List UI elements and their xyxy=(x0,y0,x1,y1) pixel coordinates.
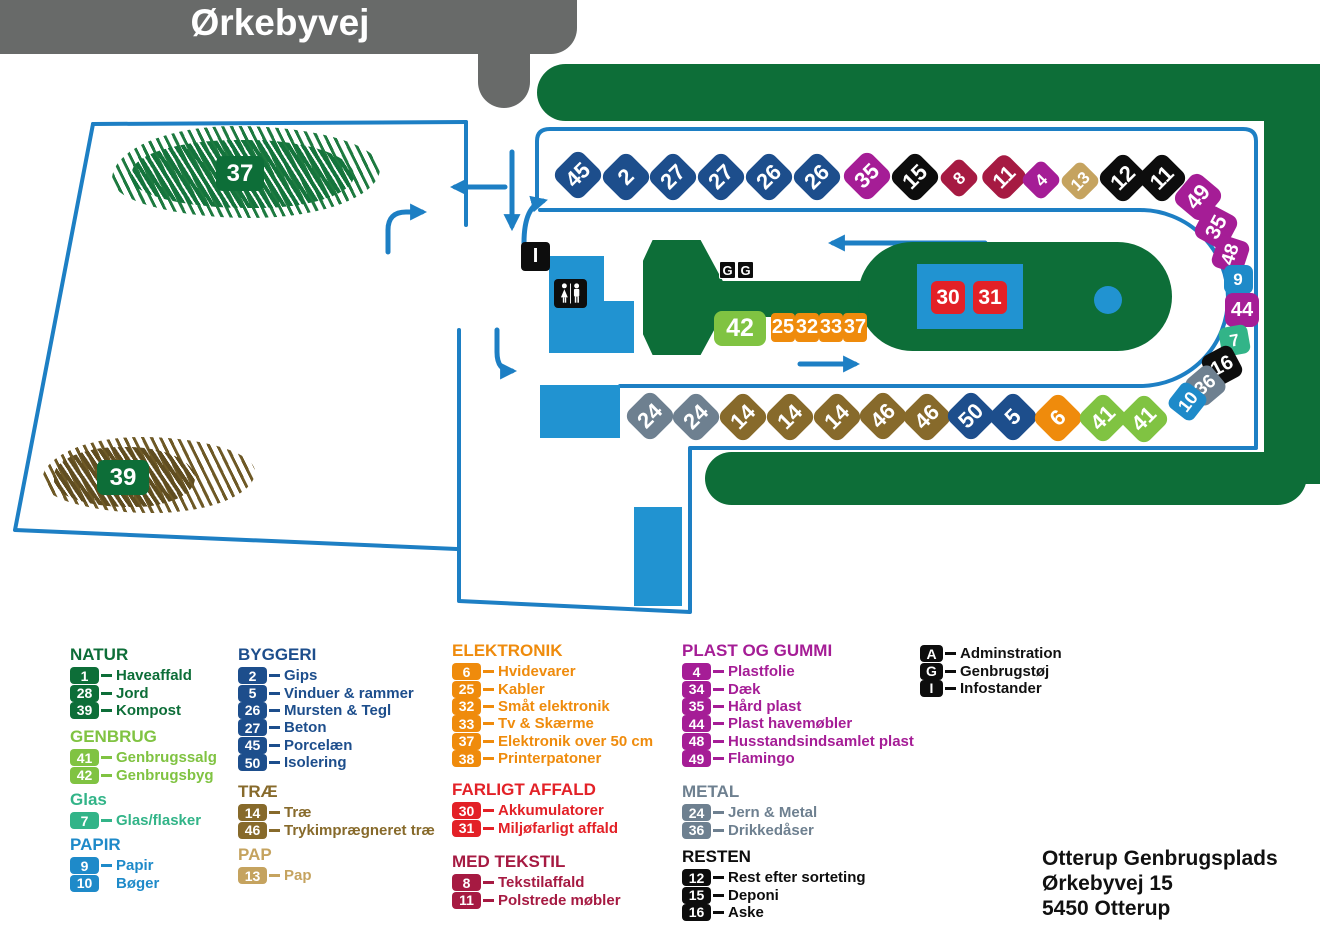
legend-label: Akkumulatorer xyxy=(498,802,604,819)
legend-label: Dæk xyxy=(728,681,761,698)
legend-item-24: 24Jern & Metal xyxy=(682,804,817,821)
legend-dash xyxy=(101,819,112,822)
facility-section: AAdminstrationGGenbrugstøjIInfostander xyxy=(920,645,1062,697)
legend-number-badge: 32 xyxy=(452,698,481,715)
legend-item-1: 1Haveaffald xyxy=(70,667,192,684)
legend-label: Plastfolie xyxy=(728,663,795,680)
legend-dash xyxy=(483,899,494,902)
legend-number-badge: 27 xyxy=(238,719,267,736)
legend-item-27: 27Beton xyxy=(238,719,414,736)
legend-dash xyxy=(713,705,724,708)
facility-label: Adminstration xyxy=(960,645,1062,662)
legend-number-badge: 26 xyxy=(238,702,267,719)
legend-dash xyxy=(101,756,112,759)
legend-dash xyxy=(269,674,280,677)
legend-number-badge: 38 xyxy=(452,750,481,767)
legend-dash xyxy=(269,761,280,764)
legend-number-badge: 6 xyxy=(452,663,481,680)
legend-item-30: 30Akkumulatorer xyxy=(452,802,618,819)
legend-label: Jord xyxy=(116,685,149,702)
legend-number-badge: 42 xyxy=(70,767,99,784)
legend-dash xyxy=(713,670,724,673)
legend-dash xyxy=(713,757,724,760)
legend-item-2: 2Gips xyxy=(238,667,414,684)
legend-item-38: 38Printerpatoner xyxy=(452,750,653,767)
legend-number-badge: 28 xyxy=(70,685,99,702)
legend-dash xyxy=(483,688,494,691)
legend-dash xyxy=(713,894,724,897)
legend-item-14: 14Træ xyxy=(238,804,435,821)
legend-label: Jern & Metal xyxy=(728,804,817,821)
legend-heading: Glas xyxy=(70,790,201,810)
legend-label: Glas/flasker xyxy=(116,812,201,829)
legend-section-byggeri: BYGGERI2Gips5Vinduer & rammer26Mursten &… xyxy=(238,645,414,771)
legend-section-glas: Glas7Glas/flasker xyxy=(70,790,201,829)
legend-number-badge: 5 xyxy=(238,685,267,702)
legend-label: Tekstilaffald xyxy=(498,874,584,891)
legend-number-badge: 7 xyxy=(70,812,99,829)
legend-label: Isolering xyxy=(284,754,347,771)
legend-number-badge: 24 xyxy=(682,804,711,821)
legend-number-badge: 16 xyxy=(682,904,711,921)
legend-item-25: 25Kabler xyxy=(452,680,653,697)
legend-section-plast-og-gummi: PLAST OG GUMMI4Plastfolie34Dæk35Hård pla… xyxy=(682,641,914,767)
legend-section-farligt-affald: FARLIGT AFFALD30Akkumulatorer31Miljøfarl… xyxy=(452,780,618,837)
legend-heading: ELEKTRONIK xyxy=(452,641,653,661)
legend-label: Porcelæn xyxy=(284,737,352,754)
legend-label: Trykimprægneret træ xyxy=(284,822,435,839)
legend-dash xyxy=(483,740,494,743)
legend-heading: RESTEN xyxy=(682,847,866,867)
legend-number-badge: 14 xyxy=(238,804,267,821)
legend-number-badge: 10 xyxy=(70,875,99,892)
legend-item-49: 49Flamingo xyxy=(682,750,914,767)
legend-label: Småt elektronik xyxy=(498,698,610,715)
legend-item-5: 5Vinduer & rammer xyxy=(238,684,414,701)
legend-heading: FARLIGT AFFALD xyxy=(452,780,618,800)
legend-heading: PAPIR xyxy=(70,835,159,855)
legend-item-37: 37Elektronik over 50 cm xyxy=(452,733,653,750)
legend-dash xyxy=(269,744,280,747)
legend-dash xyxy=(483,827,494,830)
legend-label: Polstrede møbler xyxy=(498,892,621,909)
legend-item-12: 12Rest efter sorteting xyxy=(682,869,866,886)
legend-label: Vinduer & rammer xyxy=(284,685,414,702)
legend-number-badge: 4 xyxy=(682,663,711,680)
legend-section-tr-: TRÆ14Træ46Trykimprægneret træ xyxy=(238,782,435,839)
legend-dash xyxy=(483,705,494,708)
legend-label: Kompost xyxy=(116,702,181,719)
legend-label: Drikkedåser xyxy=(728,822,814,839)
legend-label: Haveaffald xyxy=(116,667,192,684)
facility-item-G: GGenbrugstøj xyxy=(920,662,1062,679)
legend-item-44: 44Plast havemøbler xyxy=(682,715,914,732)
legend-label: Træ xyxy=(284,804,312,821)
legend-dash xyxy=(269,811,280,814)
legend-number-badge: 37 xyxy=(452,733,481,750)
facility-item-A: AAdminstration xyxy=(920,645,1062,662)
legend-number-badge: 49 xyxy=(682,750,711,767)
legend-label: Miljøfarligt affald xyxy=(498,820,618,837)
legend-section-natur: NATUR1Haveaffald28Jord39Kompost xyxy=(70,645,192,719)
legend-item-13: 13Pap xyxy=(238,867,312,884)
legend-number-badge: 46 xyxy=(238,822,267,839)
legend-label: Pap xyxy=(284,867,312,884)
facility-legend: AAdminstrationGGenbrugstøjIInfostander xyxy=(920,0,1150,933)
waste-marker-44: 44 xyxy=(1225,293,1259,327)
facility-letter-badge: A xyxy=(920,645,943,662)
legend-number-badge: 35 xyxy=(682,698,711,715)
legend-column-4: PLAST OG GUMMI4Plastfolie34Dæk35Hård pla… xyxy=(682,0,912,933)
legend-item-15: 15Deponi xyxy=(682,886,866,903)
legend-section-papir: PAPIR9Papir10Bøger xyxy=(70,835,159,892)
legend-item-35: 35Hård plast xyxy=(682,698,914,715)
address-block: Otterup Genbrugsplads Ørkebyvej 15 5450 … xyxy=(1042,846,1278,921)
legend-label: Rest efter sorteting xyxy=(728,869,866,886)
facility-label: Genbrugstøj xyxy=(960,663,1049,680)
legend-number-badge: 34 xyxy=(682,681,711,698)
legend-item-10: 10Bøger xyxy=(70,874,159,891)
legend-heading: NATUR xyxy=(70,645,192,665)
legend-number-badge: 25 xyxy=(452,681,481,698)
legend-item-32: 32Småt elektronik xyxy=(452,698,653,715)
legend-dash xyxy=(101,882,112,885)
legend-number-badge: 44 xyxy=(682,715,711,732)
legend-dash xyxy=(713,722,724,725)
legend-number-badge: 12 xyxy=(682,869,711,886)
address-line: 5450 Otterup xyxy=(1042,896,1278,921)
waste-marker-9: 9 xyxy=(1224,265,1253,294)
legend-item-42: 42Genbrugsbyg xyxy=(70,766,217,783)
legend-section-pap: PAP13Pap xyxy=(238,845,312,884)
legend-dash xyxy=(101,692,112,695)
legend-item-33: 33Tv & Skærme xyxy=(452,715,653,732)
legend-heading: MED TEKSTIL xyxy=(452,852,621,872)
legend-number-badge: 48 xyxy=(682,733,711,750)
legend-section-med-tekstil: MED TEKSTIL8Tekstilaffald11Polstrede møb… xyxy=(452,852,621,909)
legend-dash xyxy=(269,709,280,712)
legend-dash xyxy=(945,670,956,673)
legend-column-3: ELEKTRONIK6Hvidevarer25Kabler32Småt elek… xyxy=(452,0,682,933)
legend-item-9: 9Papir xyxy=(70,857,159,874)
legend-dash xyxy=(483,881,494,884)
legend-label: Printerpatoner xyxy=(498,750,601,767)
legend-item-8: 8Tekstilaffald xyxy=(452,874,621,891)
legend-label: Hård plast xyxy=(728,698,801,715)
legend-column-2: BYGGERI2Gips5Vinduer & rammer26Mursten &… xyxy=(238,0,468,933)
legend-dash xyxy=(101,864,112,867)
address-line: Otterup Genbrugsplads xyxy=(1042,846,1278,871)
green-band-right xyxy=(1264,64,1320,484)
legend-dash xyxy=(101,774,112,777)
legend-number-badge: 36 xyxy=(682,822,711,839)
legend-heading: BYGGERI xyxy=(238,645,414,665)
recycling-site-map: Ørkebyvej 37 39 xyxy=(0,0,1320,933)
facility-letter-badge: I xyxy=(920,680,943,697)
legend-label: Gips xyxy=(284,667,317,684)
legend-section-metal: METAL24Jern & Metal36Drikkedåser xyxy=(682,782,817,839)
legend-number-badge: 9 xyxy=(70,857,99,874)
legend-item-46: 46Trykimprægneret træ xyxy=(238,821,435,838)
facility-label: Infostander xyxy=(960,680,1042,697)
facility-letter-badge: G xyxy=(920,663,943,680)
address-line: Ørkebyvej 15 xyxy=(1042,871,1278,896)
legend-section-resten: RESTEN12Rest efter sorteting15Deponi16As… xyxy=(682,847,866,921)
legend-dash xyxy=(269,829,280,832)
legend-dash xyxy=(269,874,280,877)
legend-number-badge: 41 xyxy=(70,749,99,766)
legend-label: Deponi xyxy=(728,887,779,904)
legend-number-badge: 15 xyxy=(682,887,711,904)
legend-item-26: 26Mursten & Tegl xyxy=(238,702,414,719)
legend-item-16: 16Aske xyxy=(682,904,866,921)
legend-item-7: 7Glas/flasker xyxy=(70,812,201,829)
legend-dash xyxy=(945,652,956,655)
legend-dash xyxy=(945,687,956,690)
legend-dash xyxy=(101,709,112,712)
legend-heading: PLAST OG GUMMI xyxy=(682,641,914,661)
legend-heading: GENBRUG xyxy=(70,727,217,747)
legend-item-41: 41Genbrugssalg xyxy=(70,749,217,766)
legend-item-11: 11Polstrede møbler xyxy=(452,891,621,908)
legend-item-4: 4Plastfolie xyxy=(682,663,914,680)
legend-number-badge: 1 xyxy=(70,667,99,684)
legend-dash xyxy=(101,674,112,677)
legend-label: Flamingo xyxy=(728,750,795,767)
legend-number-badge: 13 xyxy=(238,867,267,884)
legend-number-badge: 11 xyxy=(452,892,481,909)
legend-section-elektronik: ELEKTRONIK6Hvidevarer25Kabler32Småt elek… xyxy=(452,641,653,767)
legend-dash xyxy=(269,692,280,695)
legend-dash xyxy=(483,809,494,812)
legend-item-39: 39Kompost xyxy=(70,702,192,719)
legend-label: Aske xyxy=(728,904,764,921)
legend-heading: PAP xyxy=(238,845,312,865)
legend-label: Kabler xyxy=(498,681,545,698)
legend-dash xyxy=(269,726,280,729)
legend-dash xyxy=(483,757,494,760)
legend-label: Genbrugsbyg xyxy=(116,767,214,784)
legend-number-badge: 39 xyxy=(70,702,99,719)
legend-dash xyxy=(713,688,724,691)
legend-item-50: 50Isolering xyxy=(238,754,414,771)
legend-dash xyxy=(483,670,494,673)
legend-label: Mursten & Tegl xyxy=(284,702,391,719)
legend-number-badge: 2 xyxy=(238,667,267,684)
legend-item-48: 48Husstandsindsamlet plast xyxy=(682,733,914,750)
legend-number-badge: 45 xyxy=(238,737,267,754)
legend-dash xyxy=(713,829,724,832)
legend-dash xyxy=(713,811,724,814)
legend-item-28: 28Jord xyxy=(70,684,192,701)
legend-dash xyxy=(483,722,494,725)
legend-label: Bøger xyxy=(116,875,159,892)
legend-heading: METAL xyxy=(682,782,817,802)
legend-dash xyxy=(713,740,724,743)
legend-number-badge: 8 xyxy=(452,874,481,891)
legend-label: Genbrugssalg xyxy=(116,749,217,766)
legend-label: Papir xyxy=(116,857,154,874)
legend-section-genbrug: GENBRUG41Genbrugssalg42Genbrugsbyg xyxy=(70,727,217,784)
legend-item-6: 6Hvidevarer xyxy=(452,663,653,680)
legend-label: Beton xyxy=(284,719,327,736)
legend-item-45: 45Porcelæn xyxy=(238,737,414,754)
legend-number-badge: 33 xyxy=(452,715,481,732)
legend-label: Plast havemøbler xyxy=(728,715,852,732)
legend-label: Husstandsindsamlet plast xyxy=(728,733,914,750)
legend-item-36: 36Drikkedåser xyxy=(682,821,817,838)
legend-label: Hvidevarer xyxy=(498,663,576,680)
facility-item-I: IInfostander xyxy=(920,680,1062,697)
legend-label: Elektronik over 50 cm xyxy=(498,733,653,750)
legend-number-badge: 50 xyxy=(238,754,267,771)
legend-item-34: 34Dæk xyxy=(682,680,914,697)
legend-heading: TRÆ xyxy=(238,782,435,802)
legend-number-badge: 31 xyxy=(452,820,481,837)
legend-dash xyxy=(713,911,724,914)
legend-label: Tv & Skærme xyxy=(498,715,594,732)
legend-number-badge: 30 xyxy=(452,802,481,819)
legend-item-31: 31Miljøfarligt affald xyxy=(452,819,618,836)
legend-dash xyxy=(713,876,724,879)
